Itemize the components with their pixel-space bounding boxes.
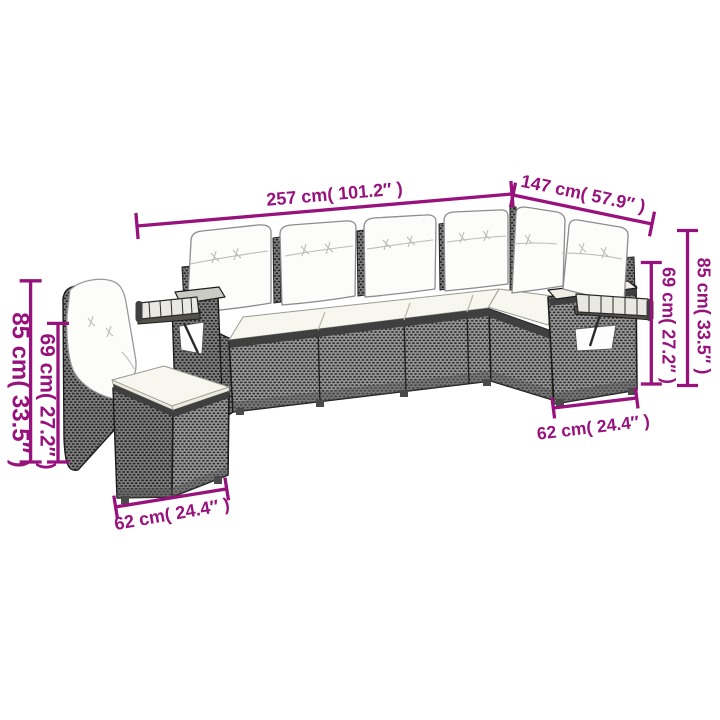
svg-text:85 cm( 33.5″ ): 85 cm( 33.5″ ) [694, 258, 714, 375]
svg-text:69 cm( 27.2″ ): 69 cm( 27.2″ ) [659, 267, 679, 384]
svg-text:85 cm( 33.5″ ): 85 cm( 33.5″ ) [7, 312, 34, 468]
svg-text:62 cm( 24.4″ ): 62 cm( 24.4″ ) [113, 494, 231, 534]
svg-text:69 cm( 27.2″ ): 69 cm( 27.2″ ) [36, 333, 59, 469]
